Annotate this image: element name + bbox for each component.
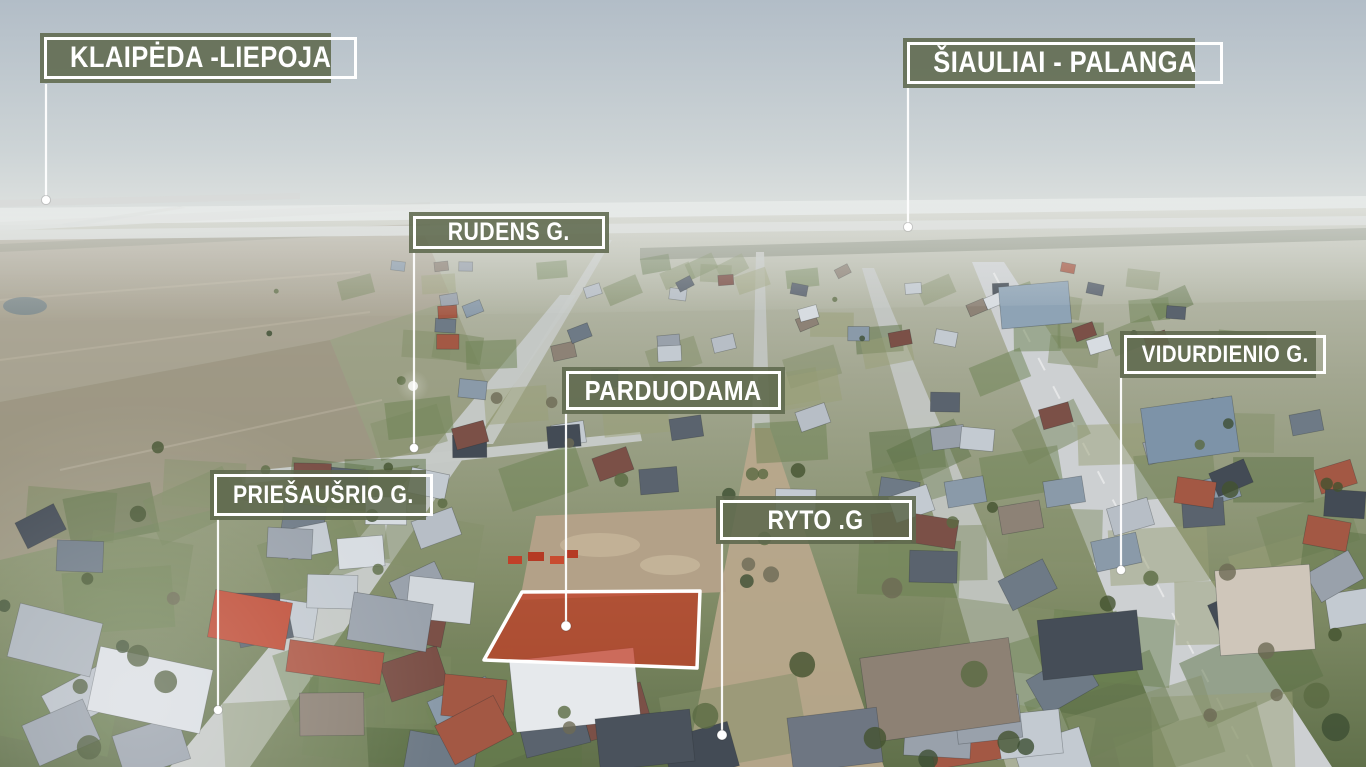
callout-klaipeda-liepoja-label: KLAIPĖDA -LIEPOJA bbox=[70, 43, 331, 73]
callout-siauliai-palanga: ŠIAULIAI - PALANGA bbox=[903, 38, 1195, 88]
callout-frame: PARDUODAMA bbox=[566, 371, 781, 410]
tree bbox=[1322, 713, 1350, 741]
tree bbox=[564, 438, 574, 448]
tree bbox=[1017, 738, 1034, 755]
callout-parduodama-label: PARDUODAMA bbox=[585, 377, 762, 405]
callout-priesausrio: PRIEŠAUŠRIO G. bbox=[210, 470, 426, 520]
tree bbox=[859, 336, 865, 342]
callout-parduodama: PARDUODAMA bbox=[562, 367, 785, 414]
callout-ryto: RYTO .G bbox=[716, 496, 916, 544]
tree bbox=[1258, 642, 1275, 659]
tree bbox=[961, 661, 988, 688]
tree bbox=[1333, 482, 1343, 492]
callout-ryto-label: RYTO .G bbox=[768, 507, 864, 534]
tree bbox=[491, 392, 503, 404]
callout-frame: ŠIAULIAI - PALANGA bbox=[907, 42, 1223, 84]
tree bbox=[1219, 564, 1236, 581]
horizon-haze bbox=[0, 196, 1366, 322]
tree bbox=[740, 574, 754, 588]
tree bbox=[746, 468, 759, 481]
callout-priesausrio-label: PRIEŠAUŠRIO G. bbox=[233, 483, 414, 508]
tree bbox=[692, 703, 718, 729]
tree bbox=[1203, 708, 1217, 722]
callout-klaipeda-liepoja: KLAIPĖDA -LIEPOJA bbox=[40, 33, 331, 83]
tree bbox=[1328, 628, 1342, 642]
tree bbox=[763, 566, 779, 582]
tree bbox=[614, 473, 628, 487]
tree bbox=[438, 498, 448, 508]
tree bbox=[864, 727, 886, 749]
aerial-photo-stage: KLAIPĖDA -LIEPOJA ŠIAULIAI - PALANGA RUD… bbox=[0, 0, 1366, 767]
callout-vidurdienio-label: VIDURDIENIO G. bbox=[1142, 343, 1309, 367]
dirt-mound bbox=[640, 555, 700, 575]
tree bbox=[563, 721, 576, 734]
tree bbox=[1195, 440, 1205, 450]
tree bbox=[1321, 478, 1333, 490]
tree bbox=[1223, 418, 1234, 429]
callout-frame: PRIEŠAUŠRIO G. bbox=[214, 474, 433, 516]
lens-flare bbox=[408, 381, 418, 391]
tree bbox=[947, 516, 959, 528]
tree bbox=[882, 578, 903, 599]
tree bbox=[1100, 595, 1116, 611]
tree bbox=[1222, 481, 1239, 498]
tree bbox=[558, 706, 571, 719]
tree bbox=[266, 330, 272, 336]
tree bbox=[758, 469, 769, 480]
callout-siauliai-palanga-label: ŠIAULIAI - PALANGA bbox=[933, 48, 1197, 78]
callout-rudens: RUDENS G. bbox=[409, 212, 609, 253]
callout-rudens-label: RUDENS G. bbox=[448, 220, 570, 245]
callout-frame: RUDENS G. bbox=[413, 216, 605, 249]
callout-frame: RYTO .G bbox=[720, 500, 912, 540]
tree bbox=[1270, 689, 1282, 701]
tree bbox=[997, 731, 1020, 754]
tree bbox=[742, 557, 756, 571]
tree bbox=[546, 397, 557, 408]
tree bbox=[987, 502, 998, 513]
callout-vidurdienio: VIDURDIENIO G. bbox=[1120, 331, 1316, 378]
callout-frame: VIDURDIENIO G. bbox=[1124, 335, 1326, 374]
tree bbox=[1304, 683, 1330, 709]
tree bbox=[789, 652, 815, 678]
callout-frame: KLAIPĖDA -LIEPOJA bbox=[44, 37, 357, 79]
tree bbox=[1143, 571, 1158, 586]
tree bbox=[791, 463, 806, 478]
